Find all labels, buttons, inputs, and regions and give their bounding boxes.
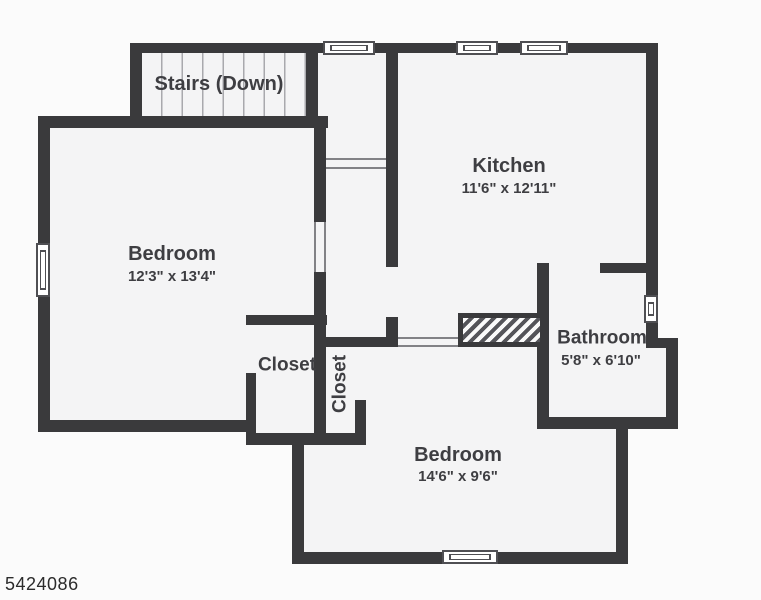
wall (38, 420, 254, 432)
door-opening (314, 222, 326, 272)
window (442, 550, 498, 564)
room-dims-kitchen: 11'6" x 12'11" (462, 181, 557, 198)
room-label-closet-left: Closet (258, 356, 316, 377)
window (644, 295, 658, 323)
floor-plan: Stairs (Down) Bedroom 12'3" x 13'4" Kitc… (0, 0, 761, 600)
listing-id: 5424086 (5, 574, 79, 595)
window (456, 41, 498, 55)
wall (246, 433, 366, 445)
door-opening (398, 337, 458, 347)
wall (314, 337, 398, 347)
room-label-stairs: Stairs (Down) (155, 73, 284, 95)
wall (306, 43, 318, 123)
window (323, 41, 375, 55)
room-label-bathroom: Bathroom (557, 329, 647, 350)
wall (355, 400, 366, 445)
window-sash (648, 302, 654, 316)
door-opening (326, 158, 386, 169)
wall (292, 439, 304, 564)
wall (666, 338, 678, 428)
window-sash (463, 45, 491, 51)
chimney-hatch (458, 313, 545, 347)
wall (600, 263, 650, 273)
wall (616, 417, 628, 564)
room-label-bedroom-bottom: Bedroom (414, 444, 502, 466)
window-sash (527, 45, 561, 51)
room-dims-bedroom-bottom: 14'6" x 9'6" (418, 469, 498, 486)
room-label-closet-vertical: Closet (331, 355, 352, 413)
room-label-kitchen: Kitchen (472, 155, 545, 177)
window-sash (449, 554, 491, 560)
window-sash (330, 45, 368, 51)
wall (386, 43, 398, 267)
wall (314, 116, 326, 222)
wall (38, 116, 328, 128)
room-dims-bedroom-left: 12'3" x 13'4" (128, 269, 216, 286)
room-dims-bathroom: 5'8" x 6'10" (561, 353, 641, 370)
window-sash (40, 250, 46, 290)
wall (246, 315, 327, 325)
wall (537, 417, 678, 429)
window (520, 41, 568, 55)
wall (130, 43, 142, 127)
room-label-bedroom-left: Bedroom (128, 243, 216, 265)
window (36, 243, 50, 297)
